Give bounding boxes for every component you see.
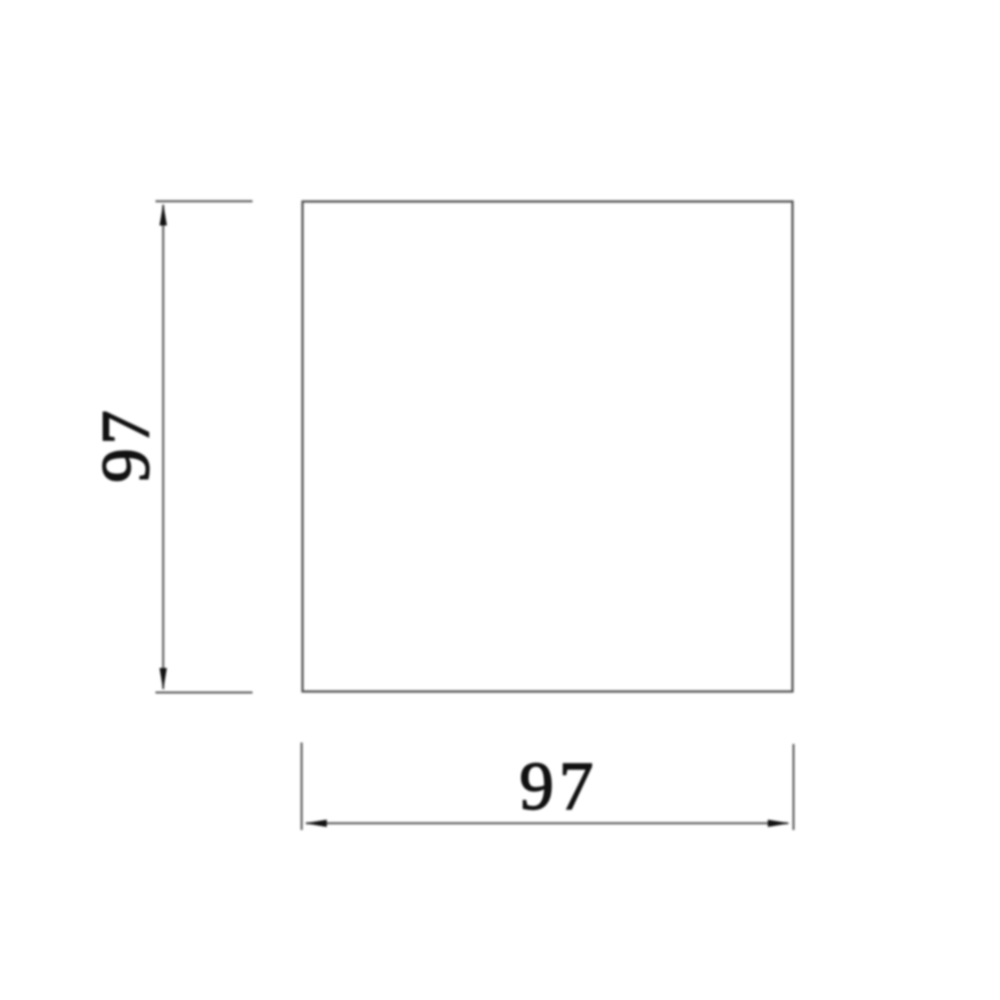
svg-text:9: 9 — [88, 448, 164, 483]
svg-text:7: 7 — [559, 748, 594, 824]
svg-text:7: 7 — [88, 410, 164, 445]
svg-text:9: 9 — [519, 748, 554, 824]
